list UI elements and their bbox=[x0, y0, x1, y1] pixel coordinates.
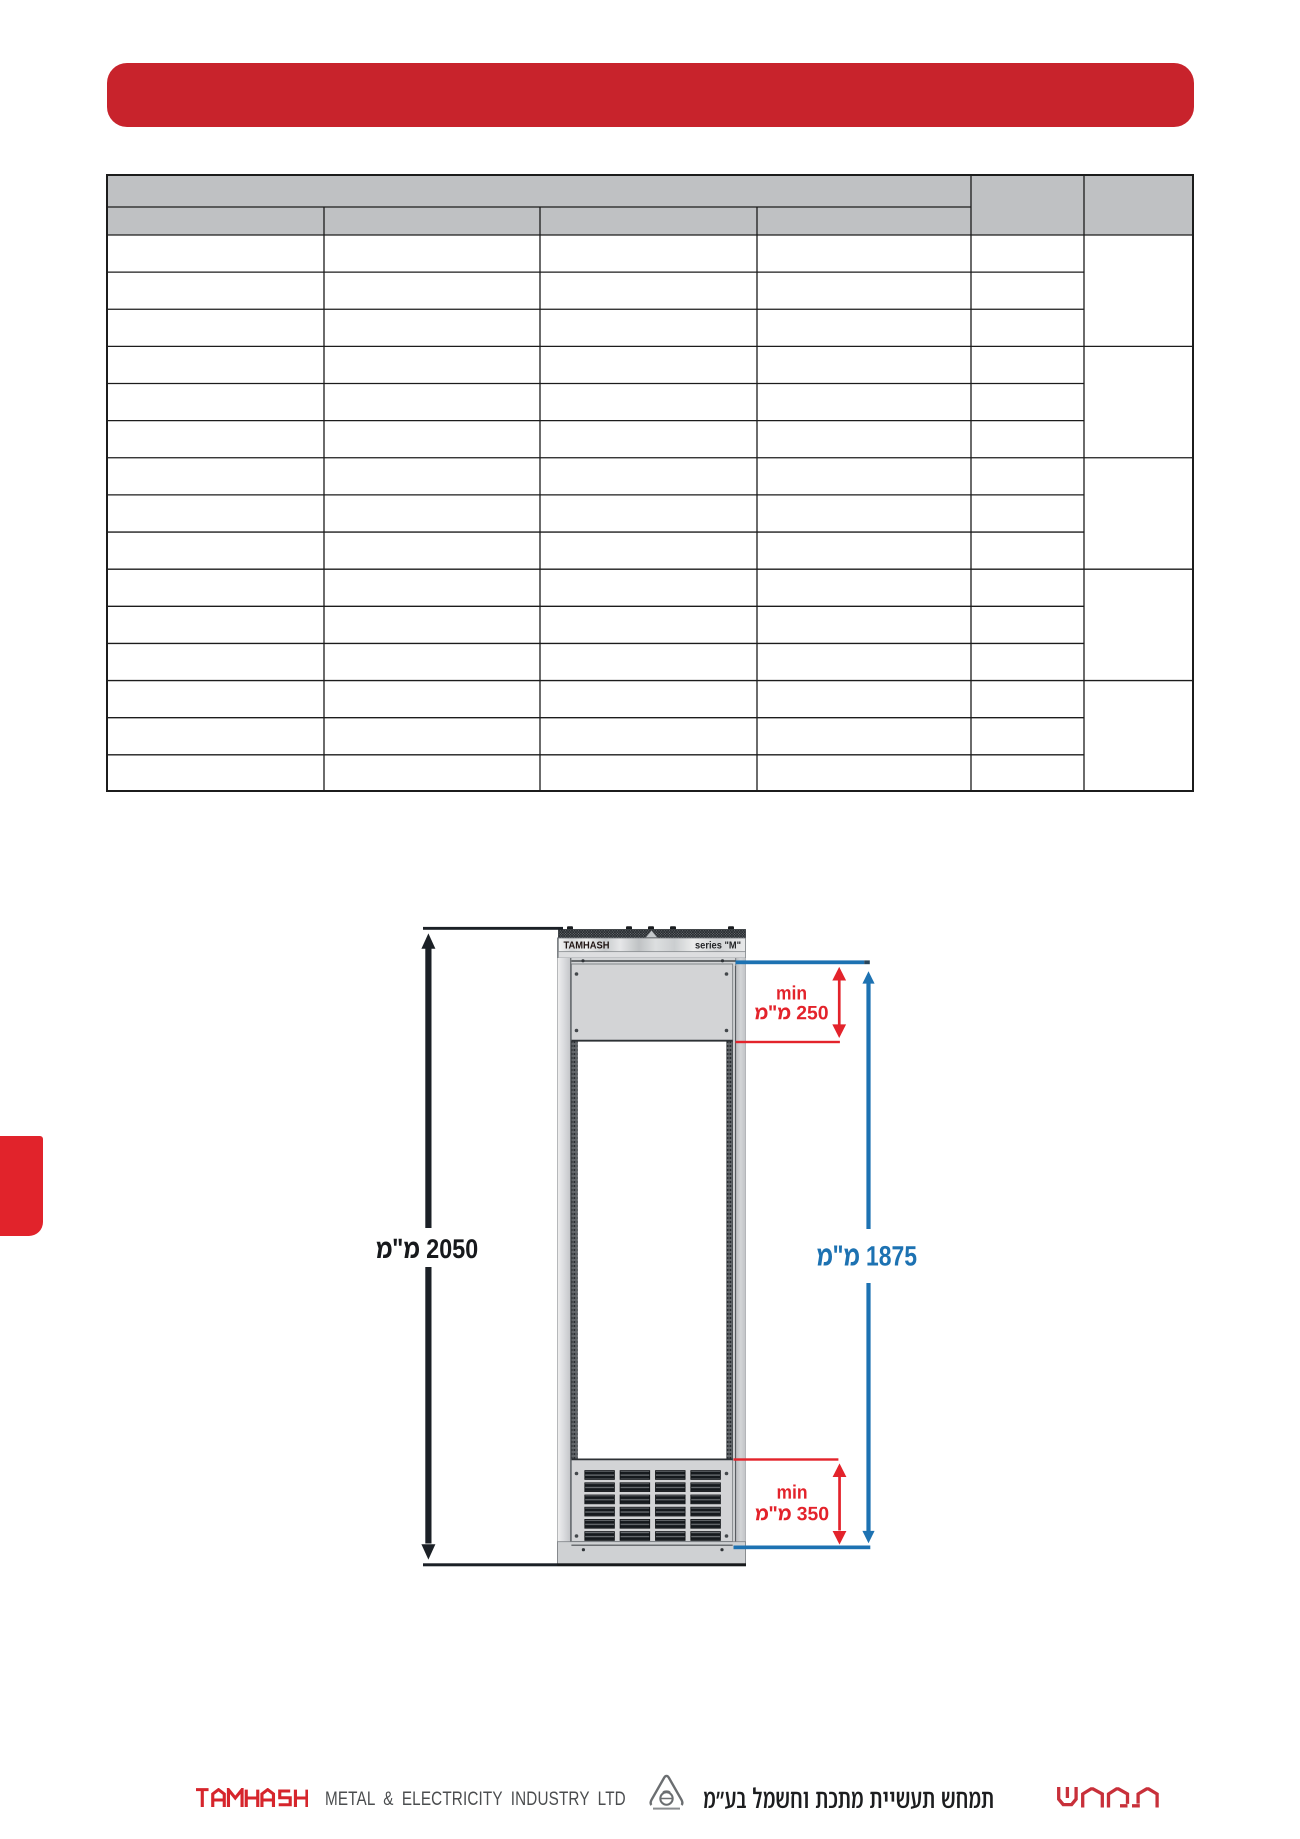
svg-text:TAMHASH: TAMHASH bbox=[564, 940, 610, 951]
svg-text:series "M": series "M" bbox=[695, 940, 741, 952]
